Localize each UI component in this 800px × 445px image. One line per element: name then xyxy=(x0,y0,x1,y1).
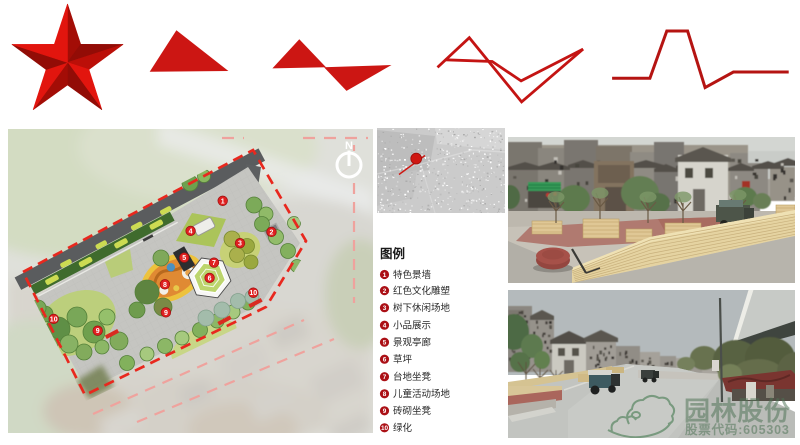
svg-text:红色文化雕塑: 红色文化雕塑 xyxy=(393,285,451,297)
svg-text:4: 4 xyxy=(383,323,387,330)
svg-text:3: 3 xyxy=(238,241,242,248)
svg-text:6: 6 xyxy=(208,275,212,282)
svg-text:9: 9 xyxy=(383,408,387,415)
svg-text:5: 5 xyxy=(383,340,387,347)
svg-text:1: 1 xyxy=(221,198,225,205)
svg-text:9: 9 xyxy=(164,310,168,317)
svg-text:儿童活动场地: 儿童活动场地 xyxy=(393,388,451,400)
svg-text:园林股份: 园林股份 xyxy=(684,396,790,426)
svg-text:8: 8 xyxy=(383,391,387,398)
svg-text:10: 10 xyxy=(381,425,389,432)
svg-text:9: 9 xyxy=(96,328,100,335)
svg-text:N: N xyxy=(345,140,353,152)
svg-text:10: 10 xyxy=(249,290,257,297)
svg-text:2: 2 xyxy=(270,229,274,236)
svg-text:2: 2 xyxy=(383,288,387,295)
svg-text:8: 8 xyxy=(163,282,167,289)
svg-text:图例: 图例 xyxy=(380,246,405,261)
svg-text:树下休闲场地: 树下休闲场地 xyxy=(393,302,451,314)
svg-text:特色景墙: 特色景墙 xyxy=(393,269,432,281)
svg-text:绿化: 绿化 xyxy=(393,422,413,434)
svg-text:1: 1 xyxy=(383,272,387,279)
svg-text:3: 3 xyxy=(383,305,387,312)
svg-text:景观亭廊: 景观亭廊 xyxy=(393,337,432,349)
svg-text:6: 6 xyxy=(383,357,387,364)
svg-text:10: 10 xyxy=(50,316,58,323)
svg-text:草坪: 草坪 xyxy=(393,354,413,366)
svg-text:台地坐凳: 台地坐凳 xyxy=(393,371,432,383)
svg-text:7: 7 xyxy=(383,374,387,381)
svg-text:4: 4 xyxy=(189,228,193,235)
svg-text:7: 7 xyxy=(212,260,216,267)
svg-text:5: 5 xyxy=(182,255,186,262)
svg-text:股票代码:605303: 股票代码:605303 xyxy=(685,422,790,437)
svg-text:小品展示: 小品展示 xyxy=(393,321,431,332)
svg-text:砖砌坐凳: 砖砌坐凳 xyxy=(393,405,432,417)
